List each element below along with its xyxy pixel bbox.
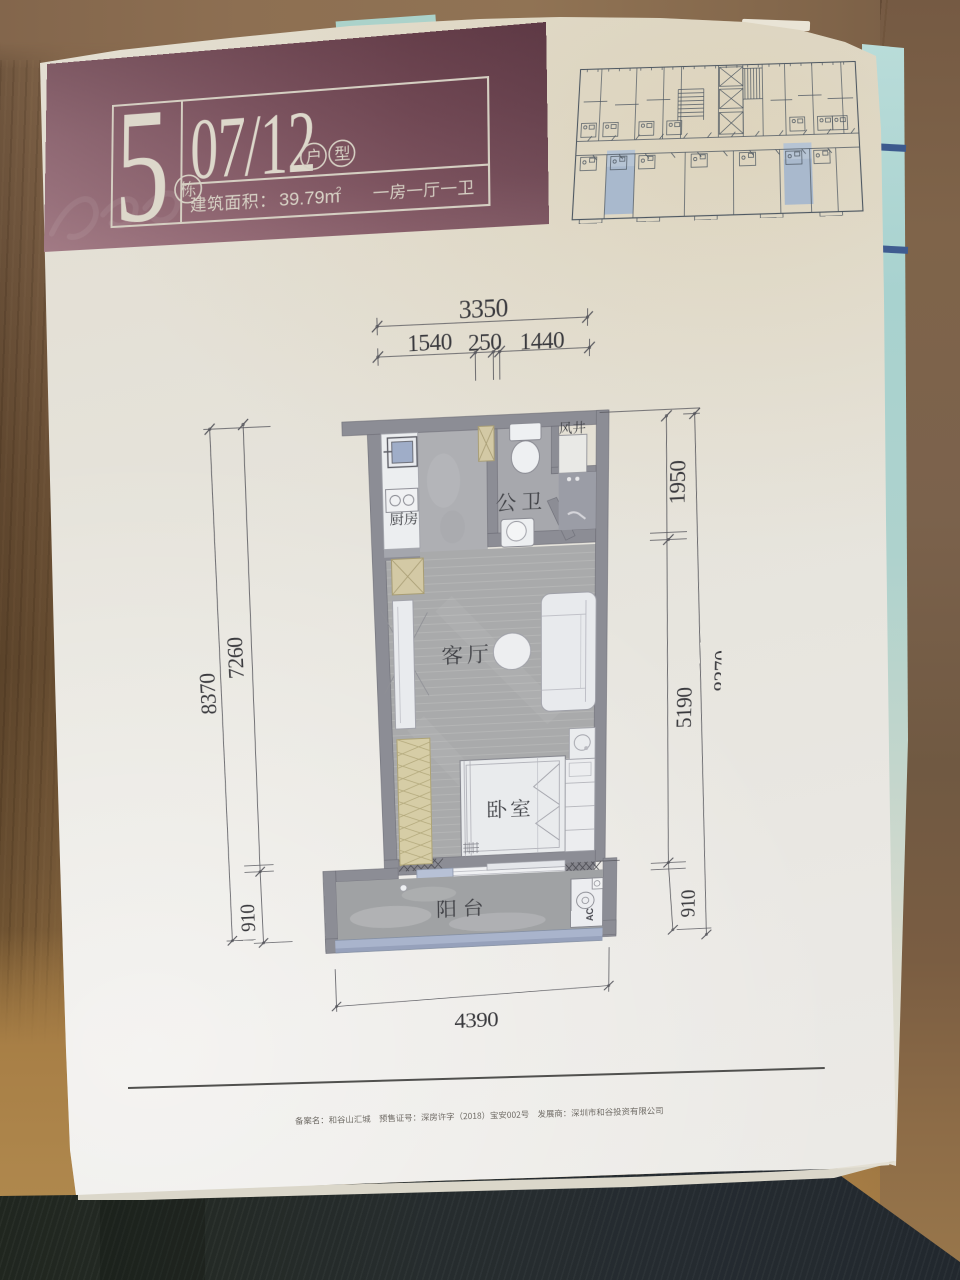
svg-text:910: 910 <box>677 889 700 917</box>
svg-text:2: 2 <box>336 185 342 197</box>
svg-text:1440: 1440 <box>520 327 565 355</box>
svg-text:7260: 7260 <box>223 637 250 680</box>
svg-text:39.79m: 39.79m <box>279 186 340 210</box>
svg-text:1540: 1540 <box>407 329 452 357</box>
svg-text:8370: 8370 <box>195 673 222 715</box>
svg-text:1950: 1950 <box>665 460 691 505</box>
svg-text:910: 910 <box>236 904 260 932</box>
svg-text:3350: 3350 <box>459 293 508 325</box>
svg-text:5190: 5190 <box>672 687 697 729</box>
svg-text:250: 250 <box>468 329 502 357</box>
svg-text:AC: AC <box>585 908 595 922</box>
svg-text:4390: 4390 <box>454 1007 498 1033</box>
